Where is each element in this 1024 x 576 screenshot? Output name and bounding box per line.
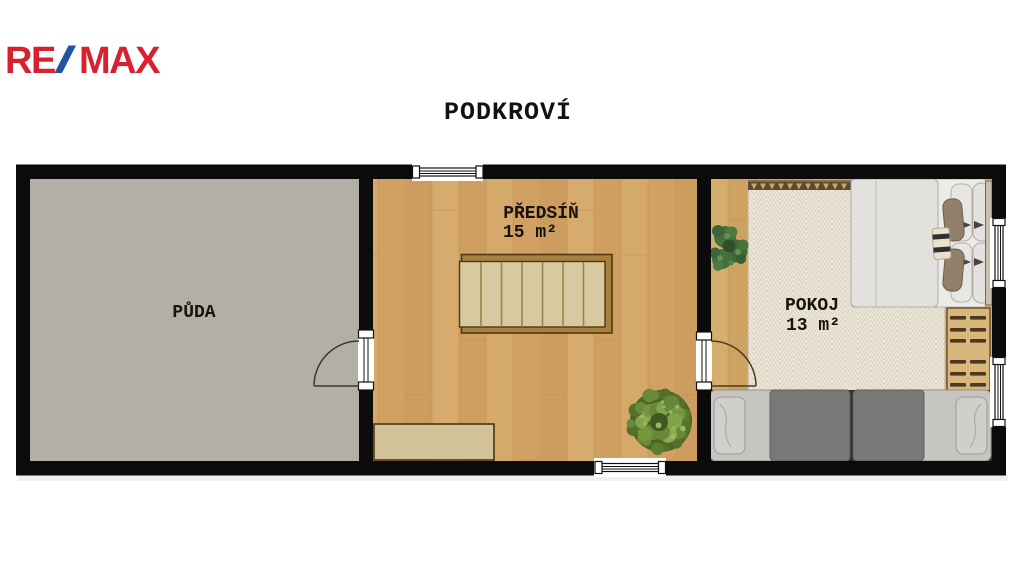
svg-text:PŮDA: PŮDA <box>172 301 215 323</box>
svg-text:13 m²: 13 m² <box>786 316 840 336</box>
svg-text:MAX: MAX <box>79 40 161 82</box>
svg-text:POKOJ: POKOJ <box>785 296 839 316</box>
svg-text:RE: RE <box>5 40 55 82</box>
svg-text:PODKROVÍ: PODKROVÍ <box>444 97 572 127</box>
svg-text:15 m²: 15 m² <box>503 223 557 243</box>
svg-text:PŘEDSÍŇ: PŘEDSÍŇ <box>503 202 579 224</box>
